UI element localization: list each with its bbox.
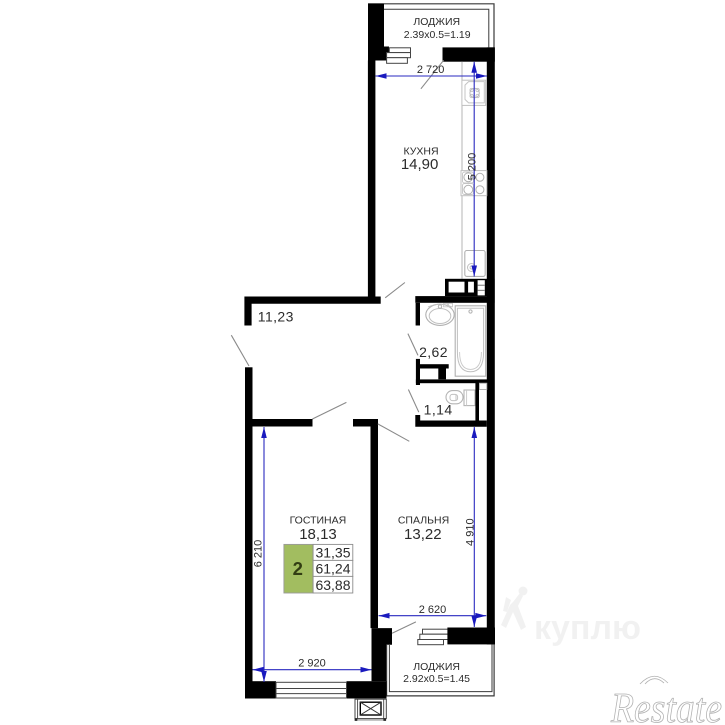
svg-text:13,22: 13,22 [404,526,442,543]
svg-text:1,14: 1,14 [424,401,453,417]
svg-text:2 720: 2 720 [417,64,445,76]
svg-text:2: 2 [293,558,303,579]
svg-text:2 920: 2 920 [298,658,326,670]
svg-text:куплю: куплю [534,609,641,647]
svg-text:14,90: 14,90 [401,156,439,173]
svg-text:2,62: 2,62 [419,344,448,360]
svg-text:2.39х0.5=1.19: 2.39х0.5=1.19 [404,29,471,41]
svg-text:Restate: Restate [610,686,722,725]
svg-text:31,35: 31,35 [315,544,350,560]
svg-text:ЛОДЖИЯ: ЛОДЖИЯ [413,661,460,673]
svg-text:ГОСТИНАЯ: ГОСТИНАЯ [290,515,347,527]
svg-text:18,13: 18,13 [299,526,337,543]
svg-text:61,24: 61,24 [315,560,350,576]
svg-text:2 620: 2 620 [419,604,447,616]
svg-text:ЛОДЖИЯ: ЛОДЖИЯ [413,16,460,28]
svg-text:5 200: 5 200 [466,153,478,181]
svg-text:СПАЛЬНЯ: СПАЛЬНЯ [398,515,449,527]
svg-text:63,88: 63,88 [315,577,350,593]
svg-text:2.92х0.5=1.45: 2.92х0.5=1.45 [403,673,470,685]
svg-text:4 910: 4 910 [464,518,476,546]
svg-text:6 210: 6 210 [253,540,265,568]
svg-text:11,23: 11,23 [258,308,294,324]
